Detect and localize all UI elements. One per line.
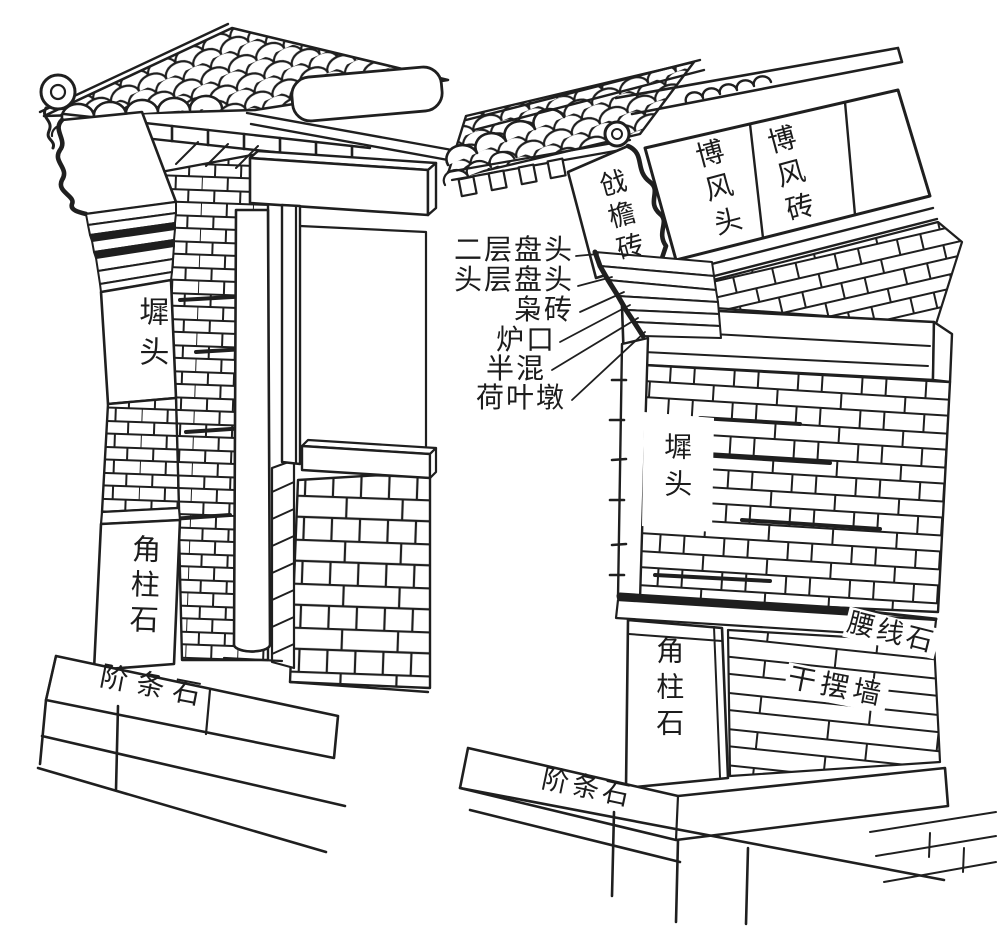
line-art-drawing <box>0 0 998 932</box>
callout-lukou: 炉口 <box>430 326 556 356</box>
callout-touceng-pantou: 头层盘头 <box>448 266 574 296</box>
label-chitou-left: 墀头 <box>134 296 166 376</box>
callout-xiaozhuan: 枭砖 <box>448 296 574 326</box>
left-lower-brick-wall <box>290 472 430 688</box>
left-qiangyan-panel <box>58 112 176 214</box>
left-cornice-moldings <box>86 202 176 292</box>
left-drawing <box>38 24 452 852</box>
wall-corner-bricks <box>272 460 294 668</box>
left-pier-bricks <box>102 398 179 512</box>
callout-erceng-pantou: 二层盘头 <box>448 236 574 266</box>
label-jiaozhushi-left: 角柱石 <box>124 533 159 639</box>
label-jiaozhushi-right: 角柱石 <box>652 636 682 744</box>
label-chitou-right: 墀头 <box>660 432 690 506</box>
right-cornice-moldings <box>595 252 721 338</box>
callout-banhun: 半混 <box>420 355 546 385</box>
window-frame <box>282 205 436 478</box>
callout-heyedun: 荷叶墩 <box>440 384 566 414</box>
architecture-diagram-page: 墀头 角柱石 阶条石 戗檐砖 博风头 博风砖 二层盘头 头层盘头 枭砖 炉口 半… <box>0 0 998 932</box>
